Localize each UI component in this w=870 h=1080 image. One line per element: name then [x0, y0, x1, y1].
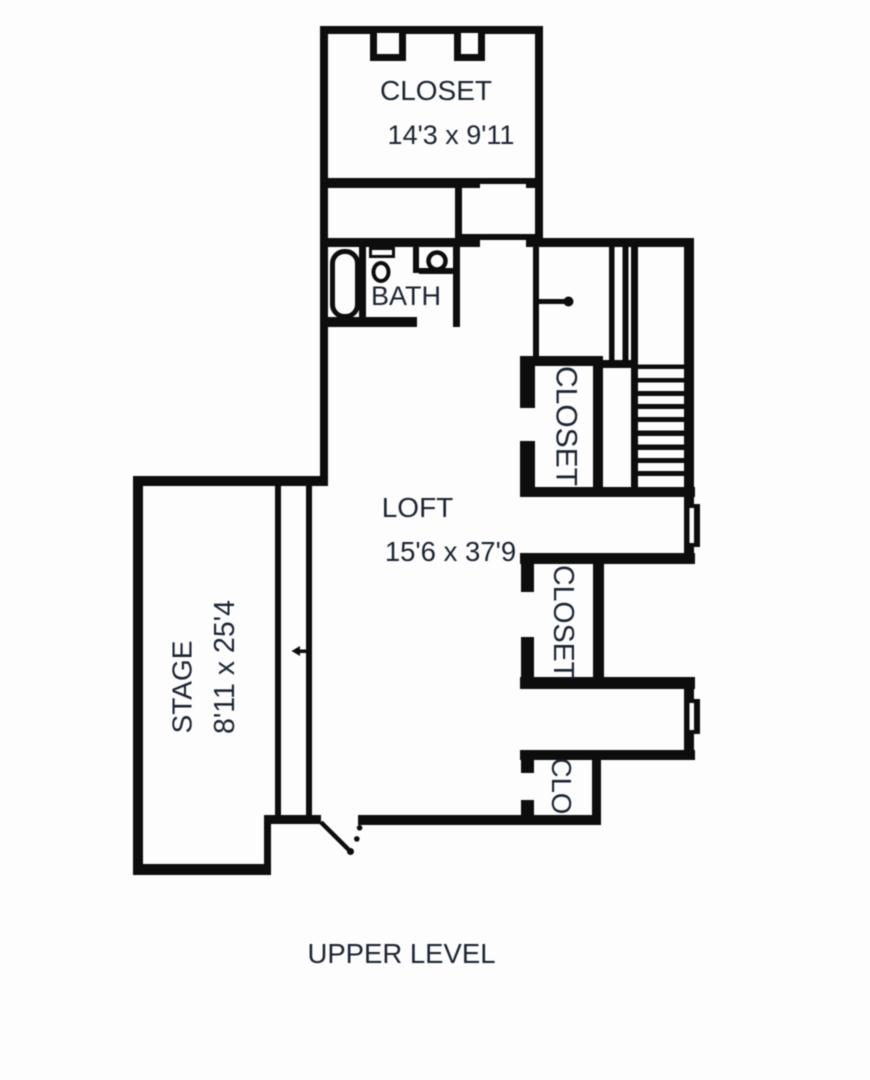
svg-text:8'11 x 25'4: 8'11 x 25'4: [209, 600, 241, 734]
svg-text:LOFT: LOFT: [382, 492, 454, 523]
svg-text:STAGE: STAGE: [167, 641, 198, 734]
svg-text:CLO: CLO: [546, 758, 577, 815]
svg-text:UPPER LEVEL: UPPER LEVEL: [307, 938, 495, 969]
svg-text:15'6 x 37'9: 15'6 x 37'9: [385, 536, 516, 567]
svg-text:14'3 x 9'11: 14'3 x 9'11: [388, 120, 515, 150]
svg-text:BATH: BATH: [371, 281, 441, 311]
svg-text:CLOSET: CLOSET: [380, 75, 492, 106]
svg-text:CLOSET: CLOSET: [550, 366, 583, 486]
svg-text:CLOSET: CLOSET: [547, 565, 579, 679]
